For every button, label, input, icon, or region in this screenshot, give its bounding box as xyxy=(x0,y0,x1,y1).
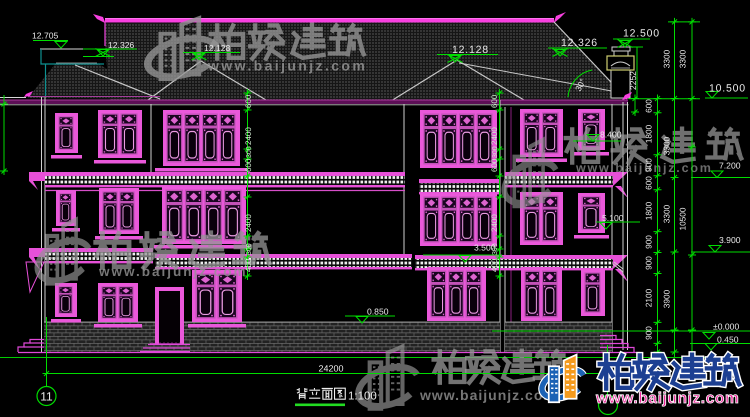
svg-text:12.128: 12.128 xyxy=(204,43,231,53)
svg-text:3900: 3900 xyxy=(662,289,672,308)
svg-text:2400: 2400 xyxy=(244,127,253,145)
svg-text:24200: 24200 xyxy=(318,364,343,374)
svg-text:3300: 3300 xyxy=(678,49,688,68)
svg-text:7.200: 7.200 xyxy=(719,161,741,171)
svg-text:300: 300 xyxy=(492,243,499,255)
svg-text:2400: 2400 xyxy=(490,214,499,232)
svg-text:5.100: 5.100 xyxy=(602,213,624,223)
svg-text:0.850: 0.850 xyxy=(367,307,389,317)
svg-text:3300: 3300 xyxy=(662,136,672,155)
svg-text:300: 300 xyxy=(246,243,253,255)
svg-text:12.500: 12.500 xyxy=(623,28,660,40)
svg-text:600: 600 xyxy=(244,94,253,108)
svg-text:2252: 2252 xyxy=(628,71,638,90)
svg-text:www.baijunjz.com: www.baijunjz.com xyxy=(207,58,367,74)
svg-text:www.baijunjz.com: www.baijunjz.com xyxy=(98,264,248,279)
svg-text:12.326: 12.326 xyxy=(561,37,598,49)
svg-text:900: 900 xyxy=(644,158,654,172)
svg-text:400: 400 xyxy=(244,258,253,272)
svg-text:±0.000: ±0.000 xyxy=(713,322,739,332)
svg-text:www.baijunjz.com: www.baijunjz.com xyxy=(419,387,557,403)
svg-text:1800: 1800 xyxy=(644,201,654,220)
svg-text:400: 400 xyxy=(490,258,499,272)
svg-text:600: 600 xyxy=(244,158,253,172)
svg-text:600: 600 xyxy=(644,99,654,113)
svg-text:10.500: 10.500 xyxy=(709,83,746,95)
svg-text:2400: 2400 xyxy=(490,127,499,145)
svg-text:12.705: 12.705 xyxy=(32,31,59,41)
svg-text:8.400: 8.400 xyxy=(600,130,622,140)
svg-text:3300: 3300 xyxy=(662,204,672,223)
svg-text:600: 600 xyxy=(644,176,654,190)
svg-text:12.326: 12.326 xyxy=(108,40,135,50)
svg-text:www.baijunjz.com: www.baijunjz.com xyxy=(595,390,739,407)
svg-text:2400: 2400 xyxy=(244,214,253,232)
svg-text:300: 300 xyxy=(246,146,253,158)
svg-text:1:100: 1:100 xyxy=(348,391,377,403)
svg-text:900: 900 xyxy=(644,326,654,340)
svg-text:1800: 1800 xyxy=(644,124,654,143)
svg-text:900: 900 xyxy=(644,256,654,270)
svg-text:2100: 2100 xyxy=(644,288,654,307)
svg-text:3.900: 3.900 xyxy=(719,235,741,245)
svg-text:11: 11 xyxy=(40,390,53,404)
svg-text:600: 600 xyxy=(490,94,499,108)
svg-text:600: 600 xyxy=(490,158,499,172)
svg-text:3300: 3300 xyxy=(662,49,672,68)
svg-text:900: 900 xyxy=(644,235,654,249)
svg-text:0.450: 0.450 xyxy=(717,335,739,345)
svg-text:10500: 10500 xyxy=(678,207,688,230)
svg-text:300: 300 xyxy=(492,146,499,158)
svg-text:12.128: 12.128 xyxy=(452,44,489,56)
